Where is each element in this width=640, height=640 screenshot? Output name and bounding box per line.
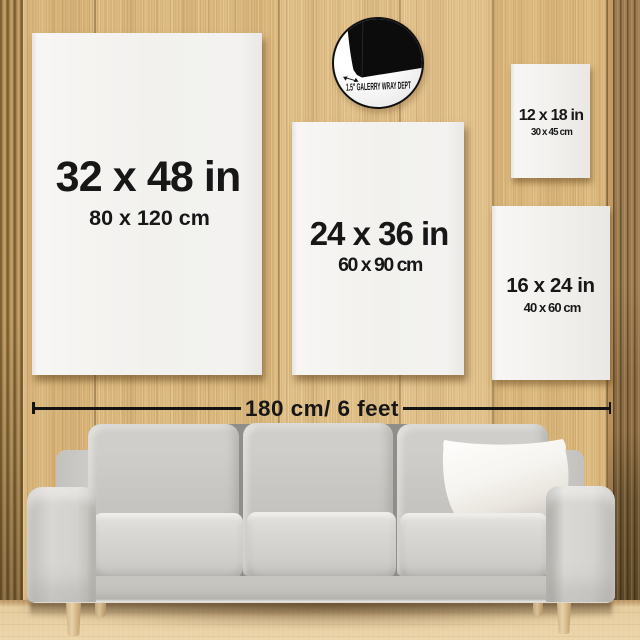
svg-text:1.5″ GALERRY WRAY DEPT: 1.5″ GALERRY WRAY DEPT [345,80,411,93]
